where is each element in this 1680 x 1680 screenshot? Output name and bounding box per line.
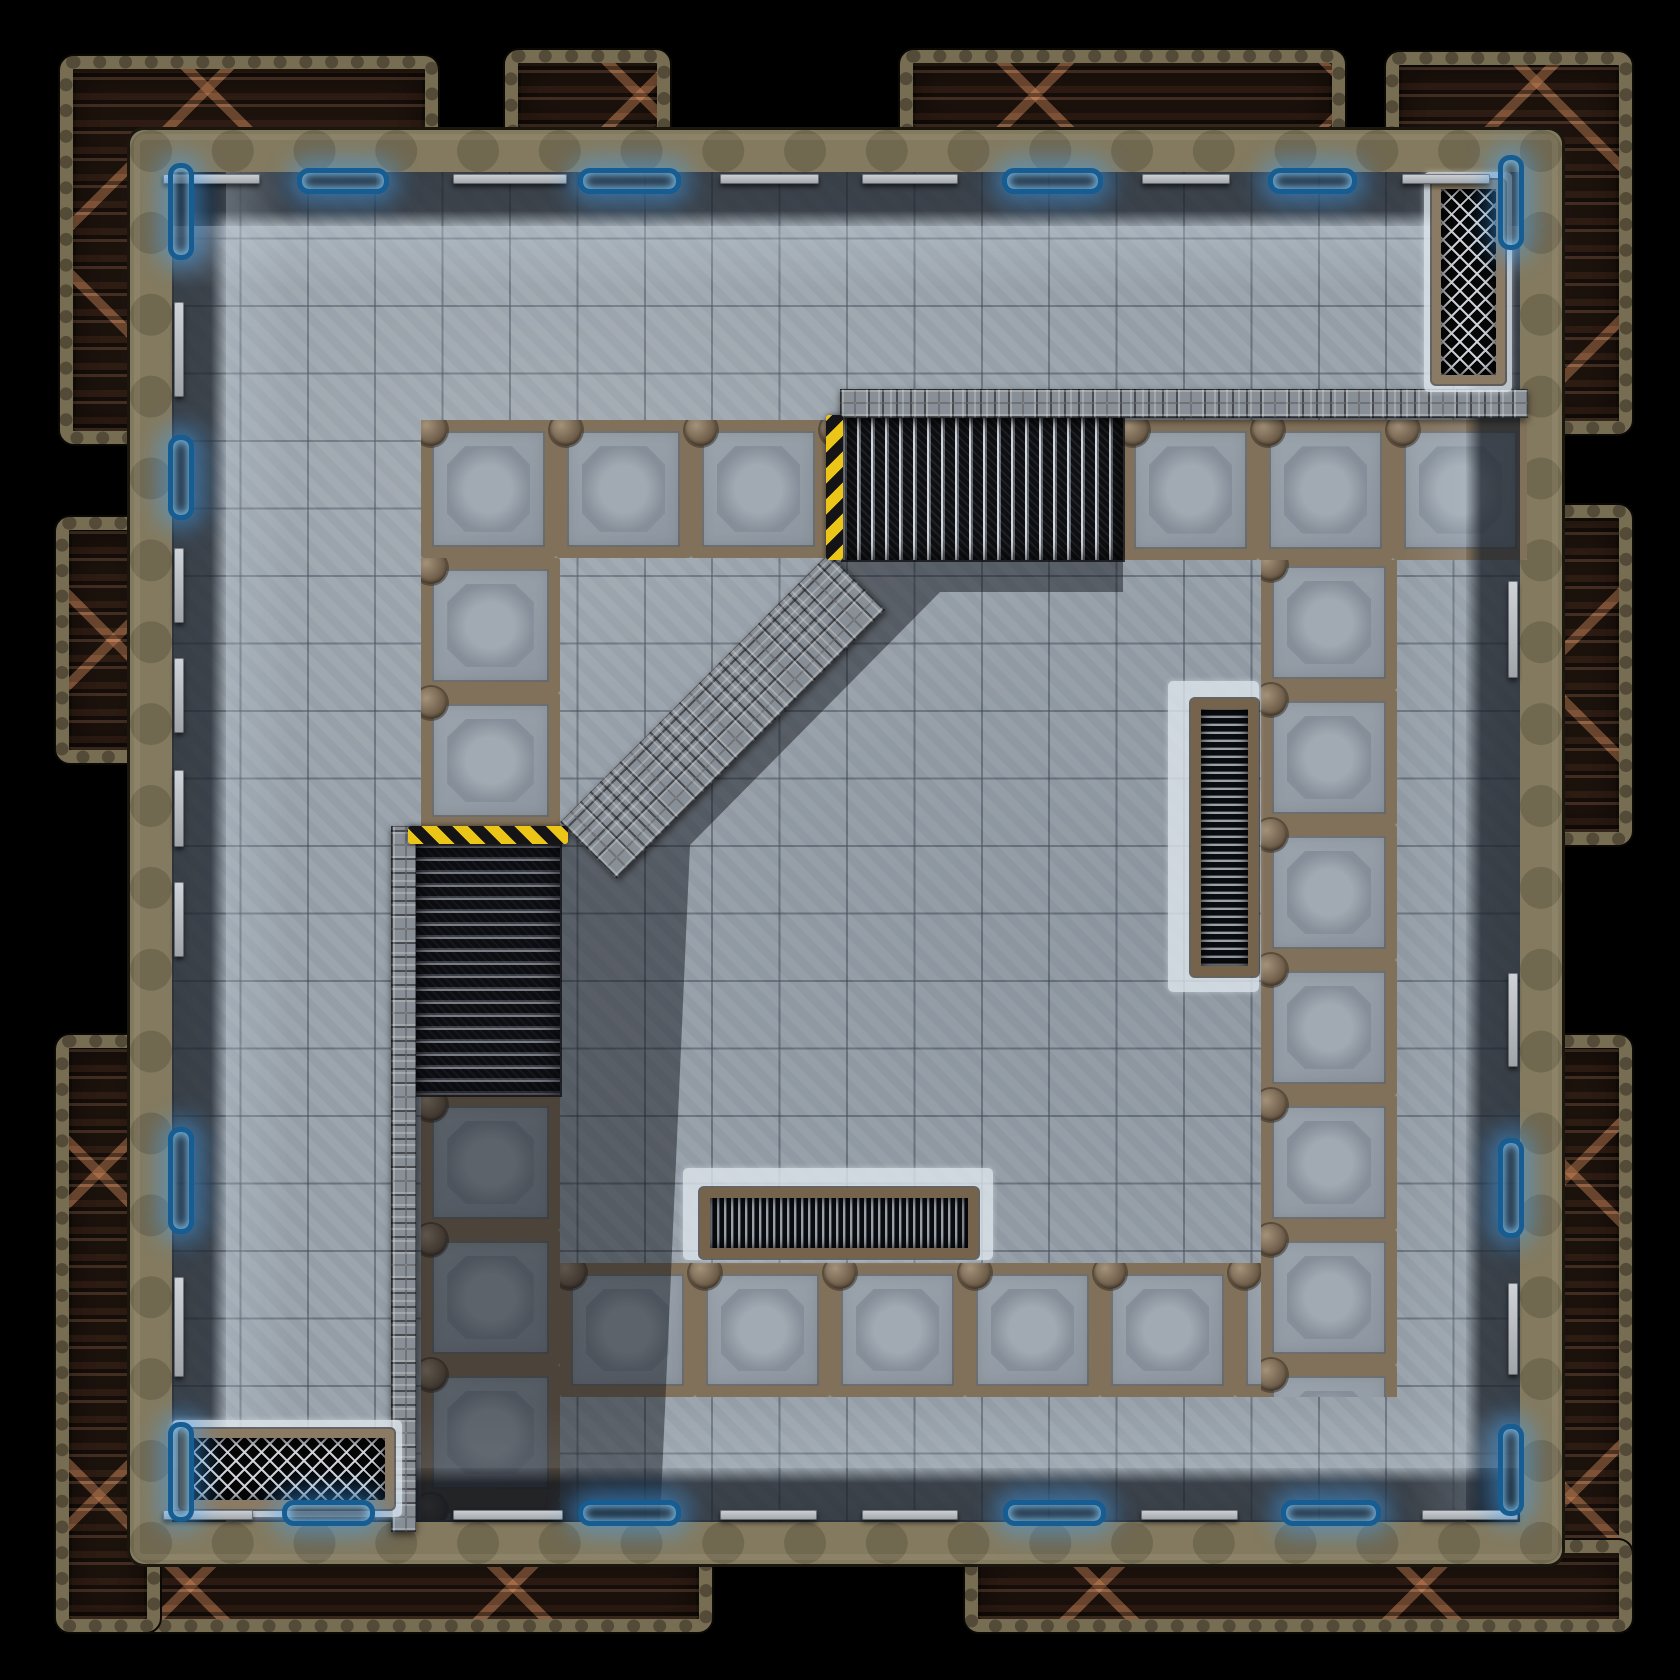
wall-neon-light <box>1498 1138 1524 1238</box>
wall-neon-light <box>578 168 681 194</box>
walkway-panel <box>1258 420 1393 560</box>
walkway-panel <box>695 1263 830 1397</box>
wall-threshold-bar <box>174 302 184 397</box>
wall-threshold-bar <box>1141 1510 1238 1520</box>
wall-threshold-bar <box>862 1510 958 1520</box>
wall-neon-light <box>168 1422 194 1522</box>
battlemap-tile <box>0 0 1680 1680</box>
walkway-panel <box>1261 1230 1397 1365</box>
walkway-panel <box>691 420 826 558</box>
wall-neon-light <box>168 1127 194 1234</box>
wall-neon-light <box>1268 168 1357 194</box>
wall-neon-light <box>1498 1424 1524 1516</box>
walkway-panel <box>1123 420 1258 560</box>
mesh-grate <box>189 1438 385 1500</box>
walkway-panel <box>830 1263 965 1397</box>
walkway-panel <box>1261 555 1397 690</box>
walkway-panel <box>1261 960 1397 1095</box>
hazard-stripe <box>408 826 568 844</box>
wall-threshold-bar <box>174 882 184 957</box>
wall-neon-light <box>297 168 389 194</box>
girder-truss-top-tab-1 <box>505 50 670 140</box>
wall-threshold-bar <box>174 1277 184 1377</box>
wall-neon-light <box>1498 155 1524 250</box>
wall-threshold-bar <box>174 770 184 847</box>
wall-threshold-bar <box>720 174 819 184</box>
wall-threshold-bar <box>1508 973 1518 1067</box>
wall-neon-light <box>578 1500 681 1526</box>
wall-neon-light <box>1002 168 1103 194</box>
walkway-panel <box>1261 690 1397 825</box>
wall-threshold-bar <box>174 548 184 623</box>
mesh-grate <box>1441 189 1496 375</box>
walkway-panel <box>1261 1365 1397 1397</box>
wall-threshold-bar <box>1402 174 1490 184</box>
walkway-panel <box>1261 1095 1397 1230</box>
walkway-panel <box>421 693 560 826</box>
walkway-strip <box>421 558 560 826</box>
wall-threshold-bar <box>1508 1283 1518 1375</box>
vent-grate <box>710 1198 968 1248</box>
wall-neon-light <box>1281 1500 1381 1526</box>
stair-grate-ramp <box>843 417 1123 560</box>
wall-threshold-bar <box>862 174 958 184</box>
walkway-panel <box>1100 1263 1235 1397</box>
wall-neon-light <box>168 435 194 520</box>
walkway-panel <box>1261 825 1397 960</box>
walkway-strip <box>1261 420 1397 1397</box>
wall-neon-light <box>282 1500 375 1526</box>
walkway-strip <box>421 420 840 558</box>
wall-threshold-bar <box>1508 581 1518 678</box>
wall-threshold-bar <box>174 658 184 733</box>
floor-light-band-top <box>172 226 1520 288</box>
walkway-panel <box>556 420 691 558</box>
wall-threshold-bar <box>453 174 567 184</box>
wall-threshold-bar <box>720 1510 817 1520</box>
wall-neon-light <box>168 163 194 260</box>
studded-platform-edge <box>840 389 1528 418</box>
walkway-panel <box>421 420 556 558</box>
wall-threshold-bar <box>453 1510 563 1520</box>
walkway-panel <box>965 1263 1100 1397</box>
wall-neon-light <box>1003 1500 1106 1526</box>
girder-truss-top-tab-2 <box>900 50 1345 140</box>
vent-grate <box>1201 709 1248 966</box>
wall-threshold-bar <box>1142 174 1230 184</box>
floor-light-band-left <box>226 172 288 1522</box>
hazard-stripe <box>826 415 843 560</box>
walkway-panel <box>421 558 560 693</box>
